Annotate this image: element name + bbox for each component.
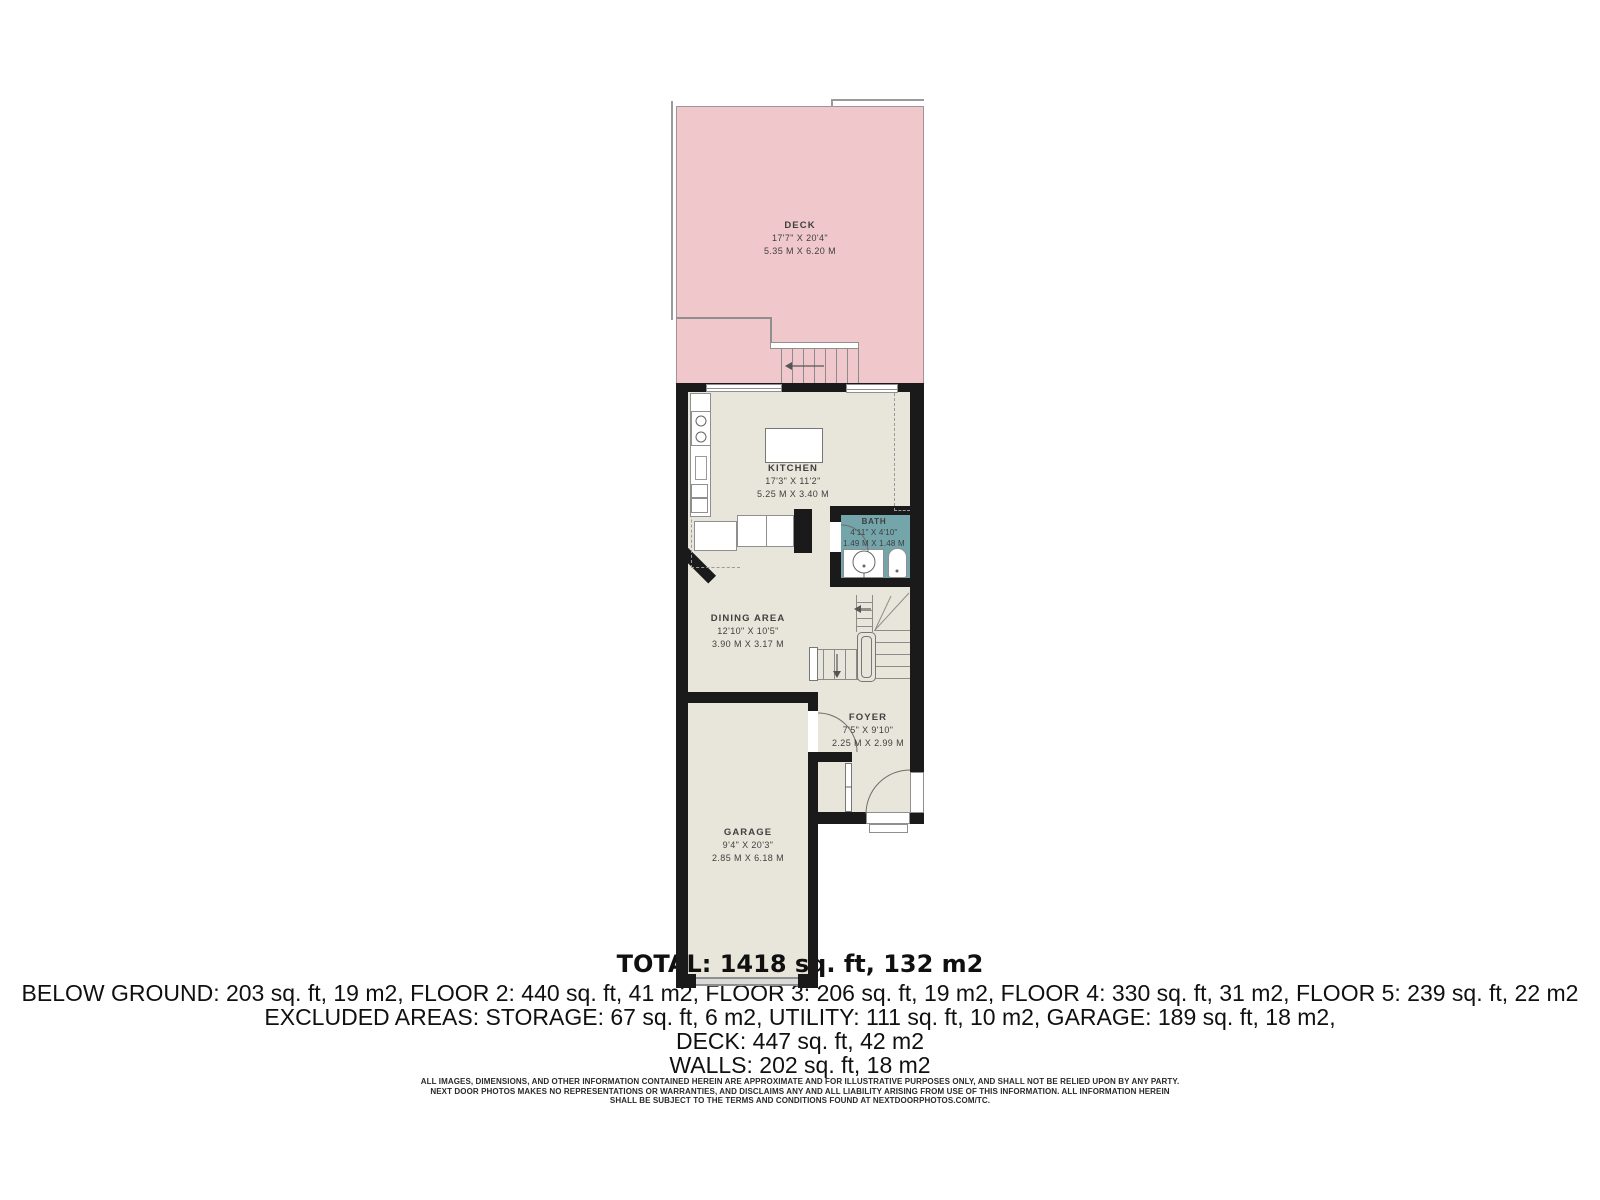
bath-door-opening: [830, 522, 841, 552]
room-dims-imperial: 17'7" X 20'4": [764, 232, 836, 245]
kitchen-corner-counter: [694, 521, 737, 551]
room-dims-metric: 5.25 M X 3.40 M: [757, 488, 829, 501]
closet-door-panel: [845, 763, 852, 812]
room-label-garage: GARAGE 9'4" X 20'3" 2.85 M X 6.18 M: [712, 826, 784, 865]
wall-west: [676, 383, 688, 988]
foyer-door-opening: [808, 711, 818, 752]
deck-area-text: DECK: 447 sq. ft, 42 m2: [0, 1028, 1600, 1055]
stair-flight-lower: [812, 649, 858, 680]
wall-east-corner: [910, 812, 924, 824]
room-name: DINING AREA: [711, 612, 786, 625]
room-name: GARAGE: [712, 826, 784, 839]
room-dims-imperial: 17'3" X 11'2": [757, 475, 829, 488]
oven: [691, 498, 708, 513]
stair-railing-inner: [861, 636, 872, 678]
peninsula-counter-2: [766, 515, 794, 547]
stair-flight-east: [874, 630, 910, 680]
deck-sliding-door: [706, 384, 782, 392]
stair-newel-post: [809, 647, 818, 681]
room-name: DECK: [764, 219, 836, 232]
walls-area-text: WALLS: 202 sq. ft, 18 m2: [0, 1052, 1600, 1079]
peninsula-counter-1: [737, 515, 767, 547]
deck-outer-line-left: [671, 101, 673, 320]
wall-foyer-south: [808, 812, 868, 824]
floor-plan-page: TOTAL: 1418 sq. ft, 132 m2 BELOW GROUND:…: [0, 0, 1600, 1200]
room-dims-imperial: 9'4" X 20'3": [712, 839, 784, 852]
stove: [691, 411, 711, 446]
wall-closet-north: [808, 752, 852, 762]
room-dims-metric: 5.35 M X 6.20 M: [764, 245, 836, 258]
disclaimer-line-3: SHALL BE SUBJECT TO THE TERMS AND CONDIT…: [0, 1096, 1600, 1106]
dishwasher: [691, 484, 708, 498]
wall-dining-south: [676, 692, 818, 703]
entry-door-threshold: [866, 812, 910, 824]
deck-stair-landing-edge: [770, 342, 859, 349]
wall-garage-south-right: [798, 974, 818, 988]
deck-stair-door: [846, 384, 898, 393]
room-name: KITCHEN: [757, 462, 829, 475]
wall-garage-south-left: [676, 974, 696, 988]
room-dims-imperial: 12'10" X 10'5": [711, 625, 786, 638]
kitchen-cabinet-outline-right: [894, 393, 910, 511]
deck-stairs: [781, 349, 859, 384]
wall-kitchen-peninsula-stub: [794, 509, 812, 553]
kitchen-island: [765, 428, 823, 463]
disclaimer-line-2: NEXT DOOR PHOTOS MAKES NO REPRESENTATION…: [0, 1087, 1600, 1097]
room-label-bath: BATH 4'11" X 4'10" 1.49 M X 1.48 M: [843, 516, 905, 549]
bath-vanity: [843, 549, 884, 578]
room-dims-imperial: 7'5" X 9'10": [832, 724, 904, 737]
room-label-kitchen: KITCHEN 17'3" X 11'2" 5.25 M X 3.40 M: [757, 462, 829, 501]
disclaimer-line-1: ALL IMAGES, DIMENSIONS, AND OTHER INFORM…: [0, 1077, 1600, 1087]
deck-landing-line-h: [676, 317, 772, 319]
room-name: BATH: [843, 516, 905, 527]
room-dims-metric: 3.90 M X 3.17 M: [711, 638, 786, 651]
room-dims-metric: 2.85 M X 6.18 M: [712, 852, 784, 865]
excluded-area-text: EXCLUDED AREAS: STORAGE: 67 sq. ft, 6 m2…: [0, 1004, 1600, 1031]
garage-door: [696, 977, 798, 986]
room-label-deck: DECK 17'7" X 20'4" 5.35 M X 6.20 M: [764, 219, 836, 258]
room-dims-metric: 1.49 M X 1.48 M: [843, 538, 905, 549]
wall-bath-south: [830, 578, 924, 587]
room-dims-metric: 2.25 M X 2.99 M: [832, 737, 904, 750]
deck-outer-line-top-connector: [831, 99, 833, 107]
kitchen-sink: [695, 456, 707, 480]
room-dims-imperial: 4'11" X 4'10": [843, 527, 905, 538]
room-label-dining: DINING AREA 12'10" X 10'5" 3.90 M X 3.17…: [711, 612, 786, 651]
room-label-foyer: FOYER 7'5" X 9'10" 2.25 M X 2.99 M: [832, 711, 904, 750]
room-name: FOYER: [832, 711, 904, 724]
entry-sidelight-window: [910, 772, 924, 813]
toilet: [888, 548, 907, 578]
stair-flight-upper: [856, 595, 873, 632]
deck-outer-line-top: [831, 99, 924, 101]
entry-exterior-step: [869, 824, 908, 833]
